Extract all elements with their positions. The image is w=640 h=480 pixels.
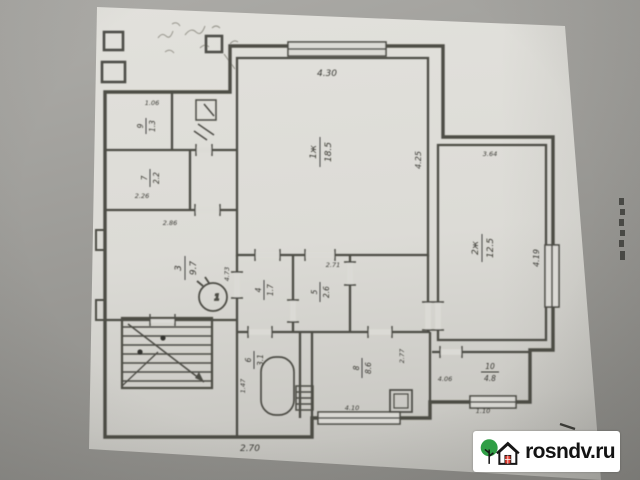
dim-hall-top: 2.86 (163, 219, 177, 227)
svg-text:7: 7 (140, 175, 149, 180)
svg-text:10: 10 (485, 362, 495, 371)
svg-text:4.8: 4.8 (484, 374, 496, 383)
room-label-5: 5 2.6 (310, 282, 331, 302)
svg-text:8.6: 8.6 (364, 362, 373, 374)
room-label-10: 10 4.8 (481, 362, 499, 383)
room-label-9: 9 1.3 (136, 118, 157, 134)
dim-room7: 2.26 (135, 192, 149, 200)
svg-text:6: 6 (244, 357, 253, 362)
svg-text:8: 8 (352, 365, 361, 370)
dim-room10-left: 4.06 (438, 375, 452, 383)
svg-text:9: 9 (136, 123, 145, 128)
svg-text:2.2: 2.2 (152, 172, 161, 184)
svg-text:2ж: 2ж (471, 240, 481, 255)
room-label-6: 6 3.1 (244, 351, 265, 369)
paper-edge-marks (619, 198, 625, 260)
staircase (122, 318, 212, 388)
svg-text:18.5: 18.5 (324, 142, 334, 162)
dim-room2-right: 4.19 (532, 249, 541, 267)
dim-kitchen-right: 2.77 (398, 348, 406, 363)
photo-of-floor-plan: 1 4.30 4.25 (0, 0, 640, 480)
floor-plan-drawing: 1 4.30 4.25 (0, 0, 640, 480)
svg-text:4: 4 (254, 287, 263, 292)
water-heater (296, 386, 313, 410)
watermark-site-text: rosndv.ru (525, 440, 615, 464)
room-label-3: 3 9.7 (174, 256, 199, 280)
door-openings (150, 150, 462, 352)
shower-fixture (194, 100, 216, 140)
dim-room1-right: 4.25 (414, 151, 423, 169)
dim-hall-right: 4.73 (223, 267, 231, 281)
dim-room2-top: 3.64 (483, 150, 497, 158)
pencil-scribbles (158, 23, 238, 69)
dim-top: 4.30 (317, 69, 337, 79)
svg-text:1ж: 1ж (309, 144, 319, 159)
svg-text:3.1: 3.1 (256, 354, 265, 366)
door-ticks (150, 144, 462, 358)
windows (288, 42, 559, 424)
dim-corridor-top: 2.71 (326, 261, 340, 269)
room-label-1: 1ж 18.5 (309, 137, 334, 167)
svg-text:5: 5 (310, 289, 319, 294)
stove (390, 390, 412, 412)
room-label-8: 8 8.6 (352, 358, 373, 378)
svg-text:1.3: 1.3 (148, 120, 157, 132)
vent-shaft-squares (102, 32, 222, 82)
dim-bath-left: 1.47 (239, 378, 247, 393)
dim-bottom: 2.70 (240, 444, 260, 454)
bathtub (261, 357, 294, 415)
svg-text:3: 3 (174, 265, 184, 271)
rosndv-logo (479, 435, 523, 469)
room-label-2: 2ж 12.5 (471, 234, 496, 262)
dim-room10-bottom: 1.10 (476, 407, 490, 415)
svg-text:12.5: 12.5 (486, 238, 496, 258)
watermark: rosndv.ru (473, 431, 620, 472)
svg-text:2.6: 2.6 (322, 286, 331, 298)
svg-text:9.7: 9.7 (189, 261, 199, 276)
svg-text:1.7: 1.7 (266, 284, 275, 296)
dim-kitchen-bottom: 4.10 (345, 404, 359, 412)
stray-mark (560, 424, 575, 429)
room-label-4: 4 1.7 (254, 280, 275, 300)
dim-wc-top: 1.06 (145, 99, 159, 107)
room-label-7: 7 2.2 (140, 169, 161, 187)
furnace-label: 1 (215, 293, 220, 302)
